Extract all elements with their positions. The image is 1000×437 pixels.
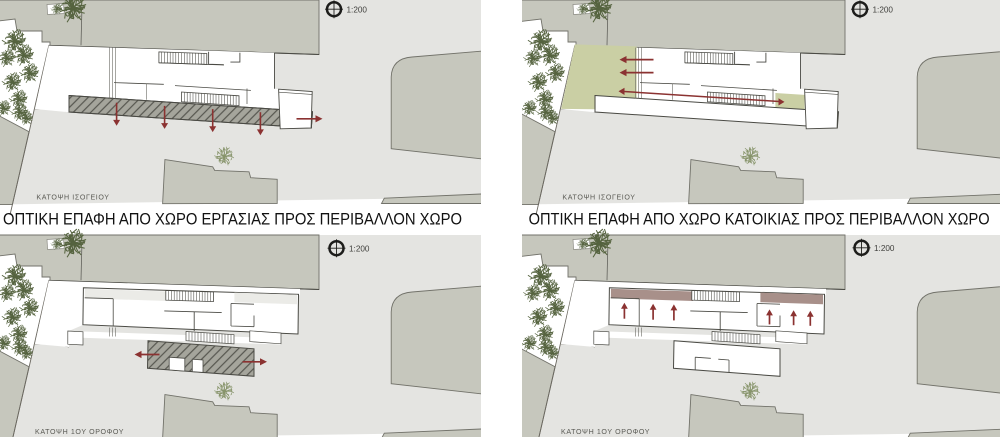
- svg-text:1:200: 1:200: [349, 245, 370, 254]
- svg-text:ΟΠΤΙΚΗ ΕΠΑΦΗ ΑΠΟ ΧΩΡΟ ΕΡΓΑΣΙΑΣ: ΟΠΤΙΚΗ ΕΠΑΦΗ ΑΠΟ ΧΩΡΟ ΕΡΓΑΣΙΑΣ ΠΡΟΣ ΠΕΡΙ…: [3, 211, 462, 229]
- svg-text:ΚΑΤΟΨΗ ΙΣΟΓΕΙΟΥ: ΚΑΤΟΨΗ ΙΣΟΓΕΙΟΥ: [562, 194, 635, 202]
- svg-text:ΚΑΤΟΨΗ 1ΟΥ ΟΡΟΦΟΥ: ΚΑΤΟΨΗ 1ΟΥ ΟΡΟΦΟΥ: [561, 428, 650, 436]
- svg-text:ΟΠΤΙΚΗ ΕΠΑΦΗ ΑΠΟ ΧΩΡΟ ΚΑΤΟΙΚΙΑ: ΟΠΤΙΚΗ ΕΠΑΦΗ ΑΠΟ ΧΩΡΟ ΚΑΤΟΙΚΙΑΣ ΠΡΟΣ ΠΕΡ…: [529, 211, 990, 229]
- svg-text:1:200: 1:200: [874, 244, 895, 253]
- svg-text:ΚΑΤΟΨΗ ΙΣΟΓΕΙΟΥ: ΚΑΤΟΨΗ ΙΣΟΓΕΙΟΥ: [36, 194, 109, 202]
- svg-text:1:200: 1:200: [873, 6, 894, 15]
- svg-text:1:200: 1:200: [347, 6, 368, 15]
- svg-text:ΚΑΤΟΨΗ 1ΟΥ ΟΡΟΦΟΥ: ΚΑΤΟΨΗ 1ΟΥ ΟΡΟΦΟΥ: [35, 428, 124, 436]
